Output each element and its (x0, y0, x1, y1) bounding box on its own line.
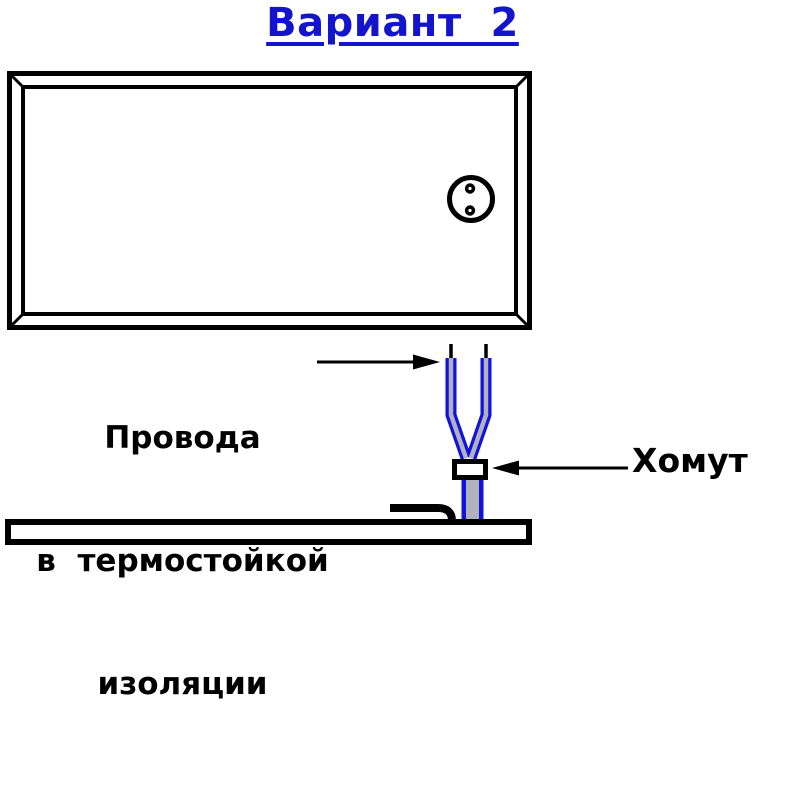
diagram-stage: Вариант 2 Провода в термостойкой изоляци… (0, 0, 785, 553)
socket-pin-top-hole (468, 187, 471, 190)
clamp (455, 462, 486, 478)
wires-label-line3: изоляции (15, 664, 350, 705)
wires-arrowhead (413, 355, 440, 370)
wires-label: Провода в термостойкой изоляции (15, 336, 350, 787)
socket-pin-bottom-hole (468, 209, 471, 212)
page-title: Вариант 2 (0, 0, 785, 47)
clamp-arrow (492, 461, 628, 476)
clamp-label: Хомут (632, 444, 748, 477)
wires-label-line1: Провода (15, 418, 350, 459)
wires-label-line2: в термостойкой (15, 541, 350, 582)
socket-icon (450, 178, 493, 221)
clamp-arrowhead (492, 461, 519, 476)
heat-resistant-wires (451, 344, 486, 458)
